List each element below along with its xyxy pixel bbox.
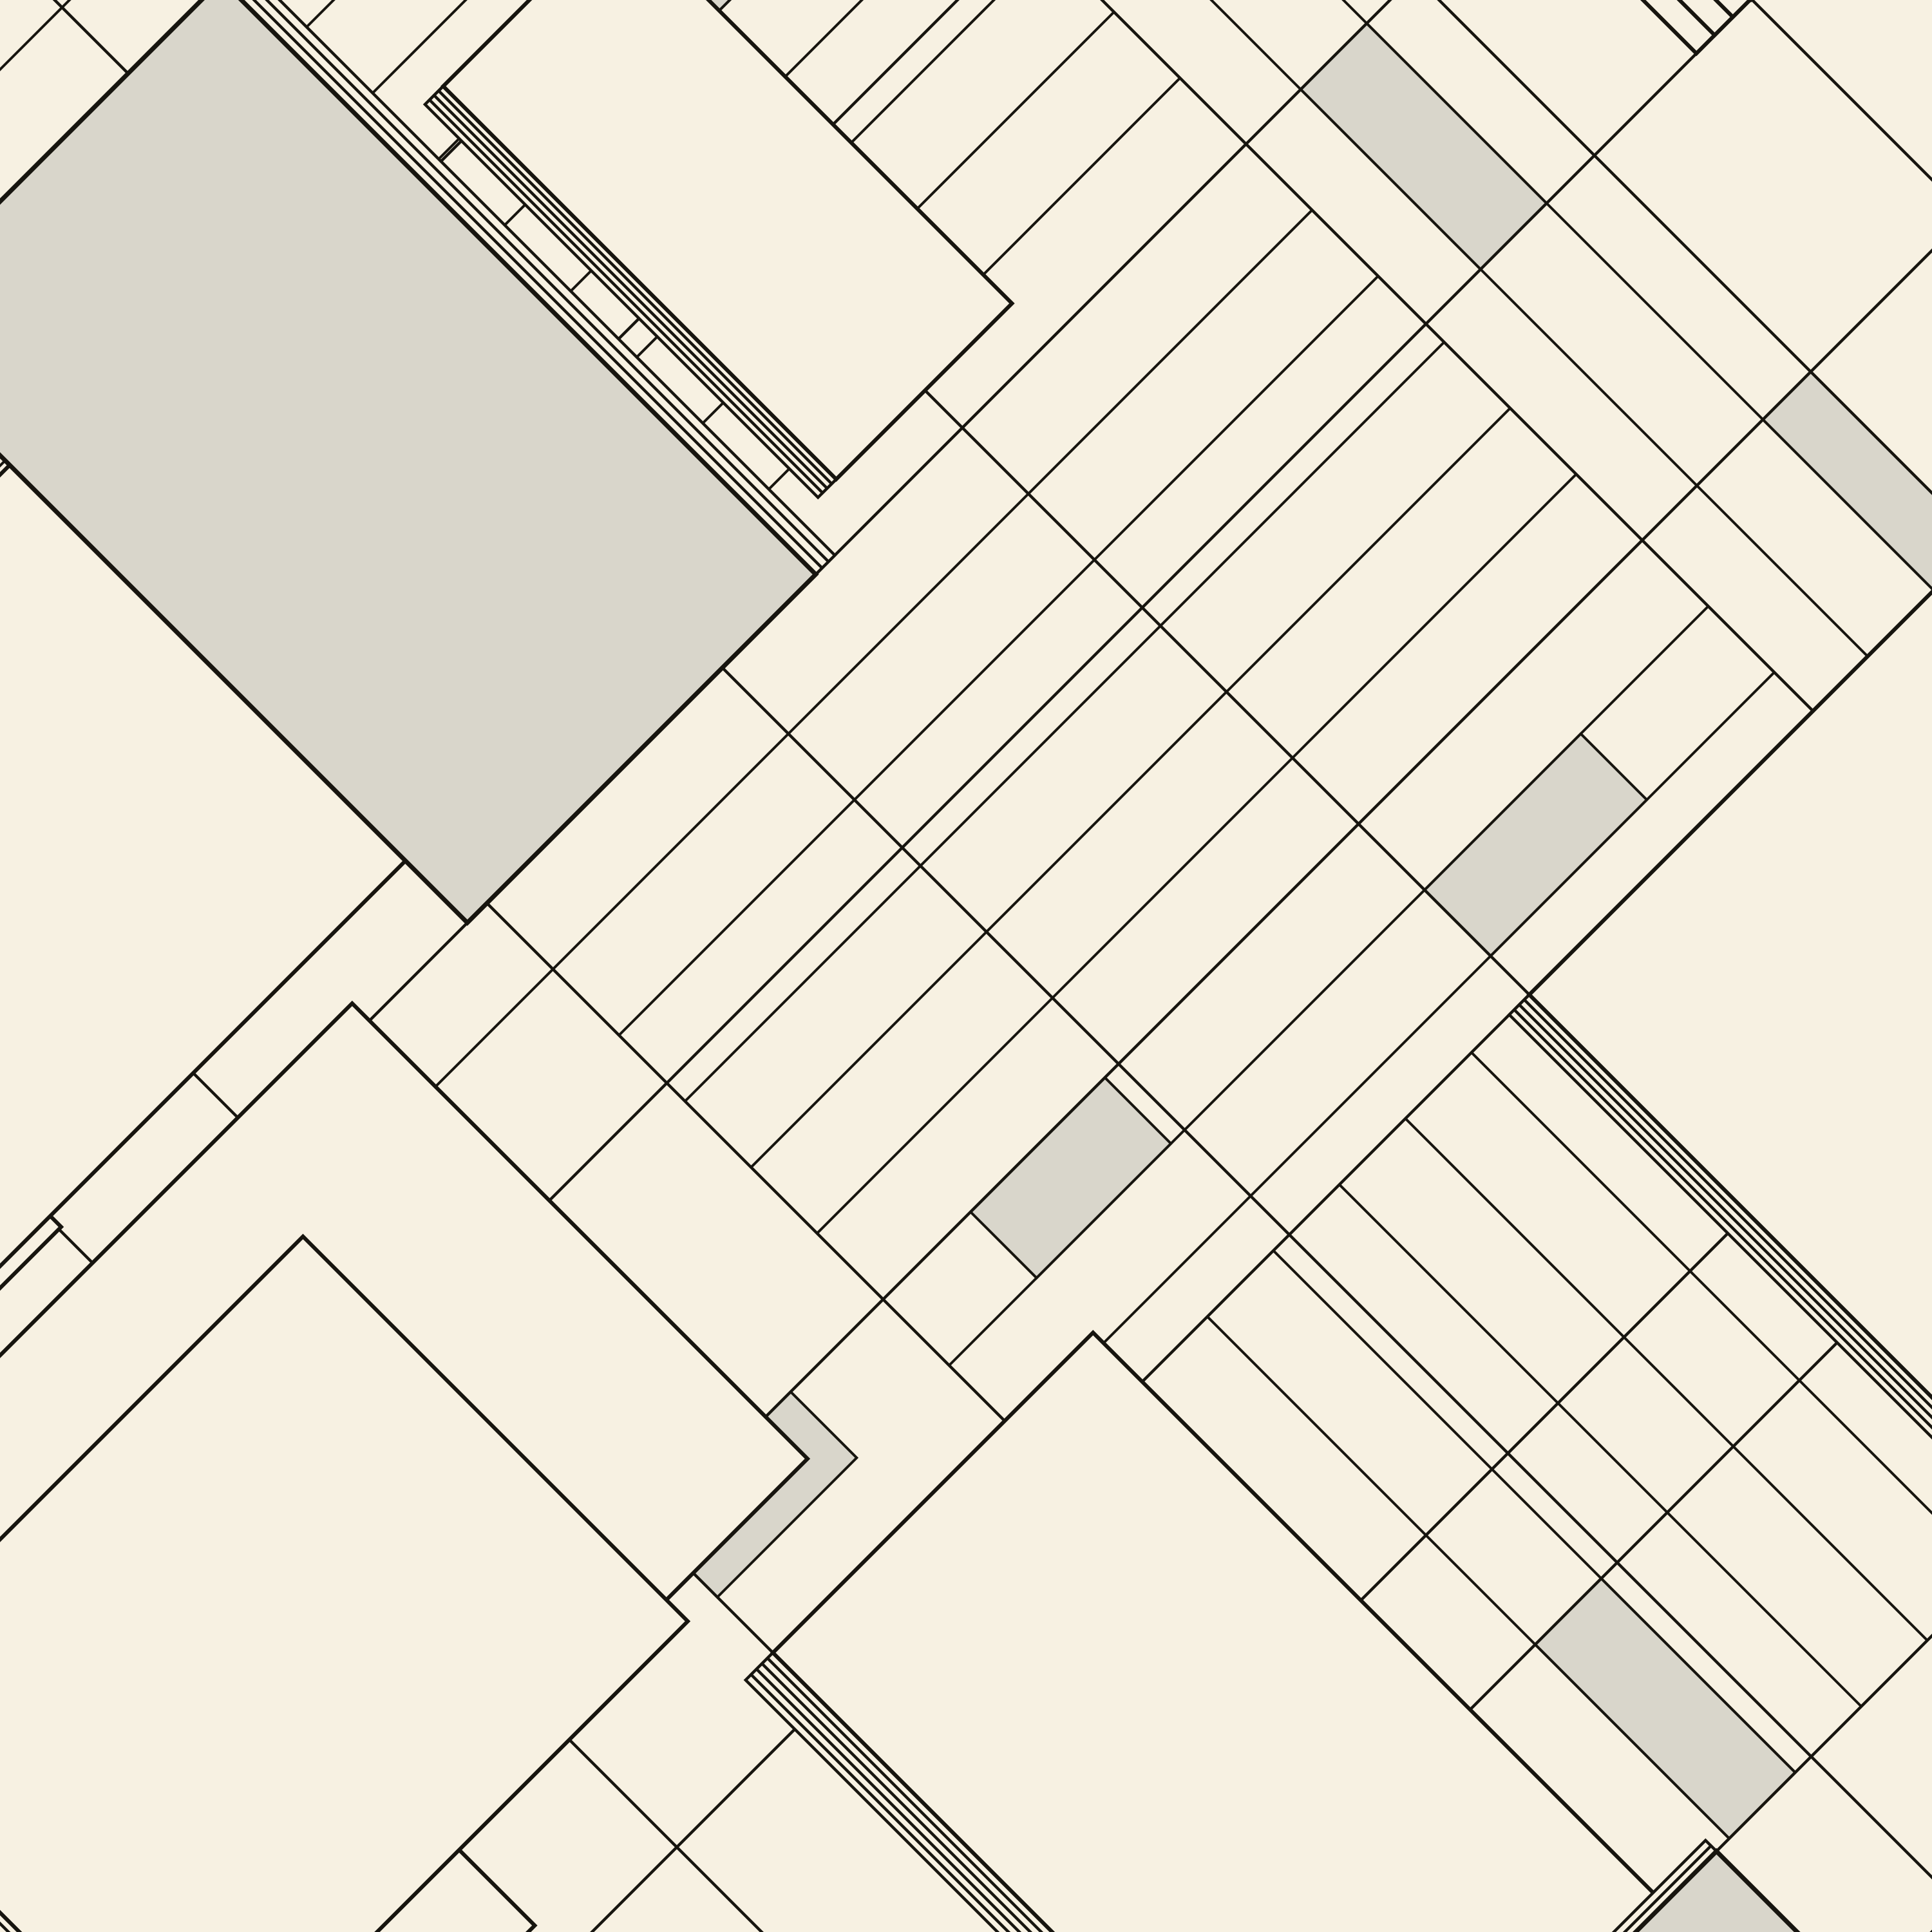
artwork-svg <box>0 0 1932 1932</box>
abstract-artwork <box>0 0 1932 1932</box>
